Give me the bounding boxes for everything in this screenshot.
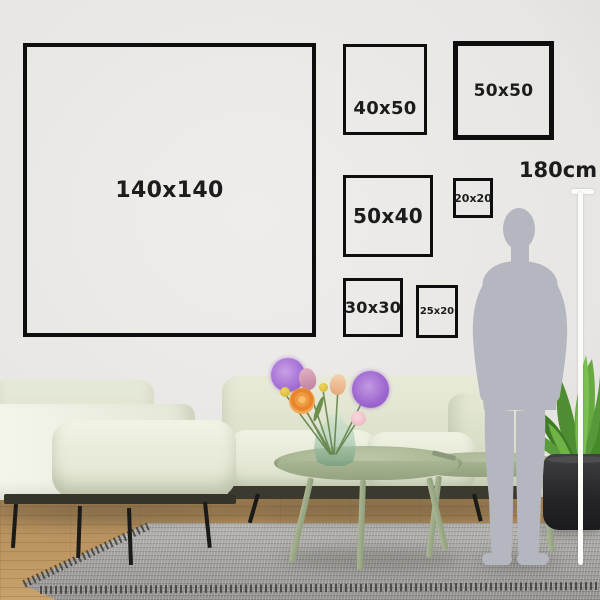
purple-allium-flower <box>352 371 389 408</box>
height-label: 180cm <box>516 158 600 182</box>
yellow-billy-button-flower <box>319 383 328 392</box>
height-measure-line-icon <box>578 192 583 565</box>
frame-label-30x30: 30x30 <box>345 298 401 317</box>
frame-label-50x40: 50x40 <box>353 204 423 228</box>
frame-140x140: 140x140 <box>23 43 316 337</box>
orange-ranunculus-flower <box>289 388 315 414</box>
frame-label-50x50: 50x50 <box>474 81 534 101</box>
person-silhouette <box>470 205 570 567</box>
flower-arrangement <box>262 348 394 472</box>
frame-label-40x50: 40x50 <box>353 98 416 119</box>
armchair-seat-cushion <box>52 420 236 498</box>
frame-label-140x140: 140x140 <box>115 178 223 203</box>
pink-bud-flower <box>351 411 366 426</box>
frame-50x50: 50x50 <box>453 41 554 140</box>
frame-label-25x20: 25x20 <box>420 306 454 317</box>
yellow-billy-button-flower <box>280 387 290 397</box>
frame-30x30: 30x30 <box>343 278 403 337</box>
frame-label-20x20: 20x20 <box>454 192 492 205</box>
frame-25x20: 25x20 <box>416 285 458 338</box>
frame-size-guide-scene: 140x140 40x50 50x50 50x40 20x20 30x30 25… <box>0 0 600 600</box>
frame-40x50: 40x50 <box>343 44 427 135</box>
armchair-base-frame <box>4 494 236 504</box>
frame-50x40: 50x40 <box>343 175 433 257</box>
table-shadow <box>282 548 462 570</box>
